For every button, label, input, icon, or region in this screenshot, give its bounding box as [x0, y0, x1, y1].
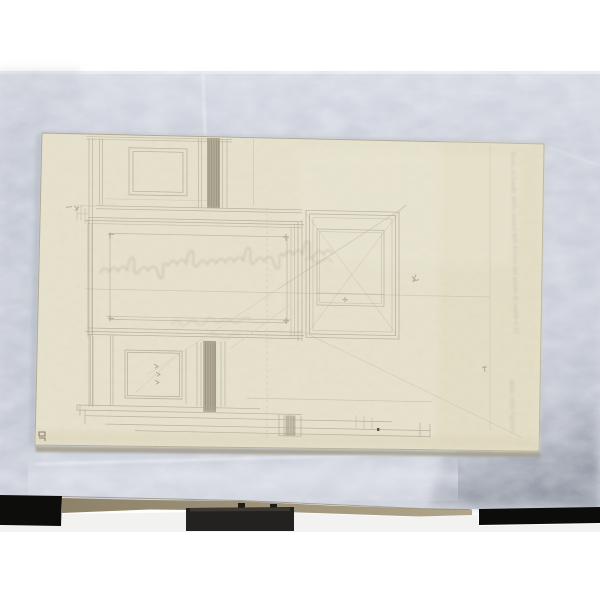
svg-text:della villa ligustri: della villa ligustri	[508, 380, 516, 433]
